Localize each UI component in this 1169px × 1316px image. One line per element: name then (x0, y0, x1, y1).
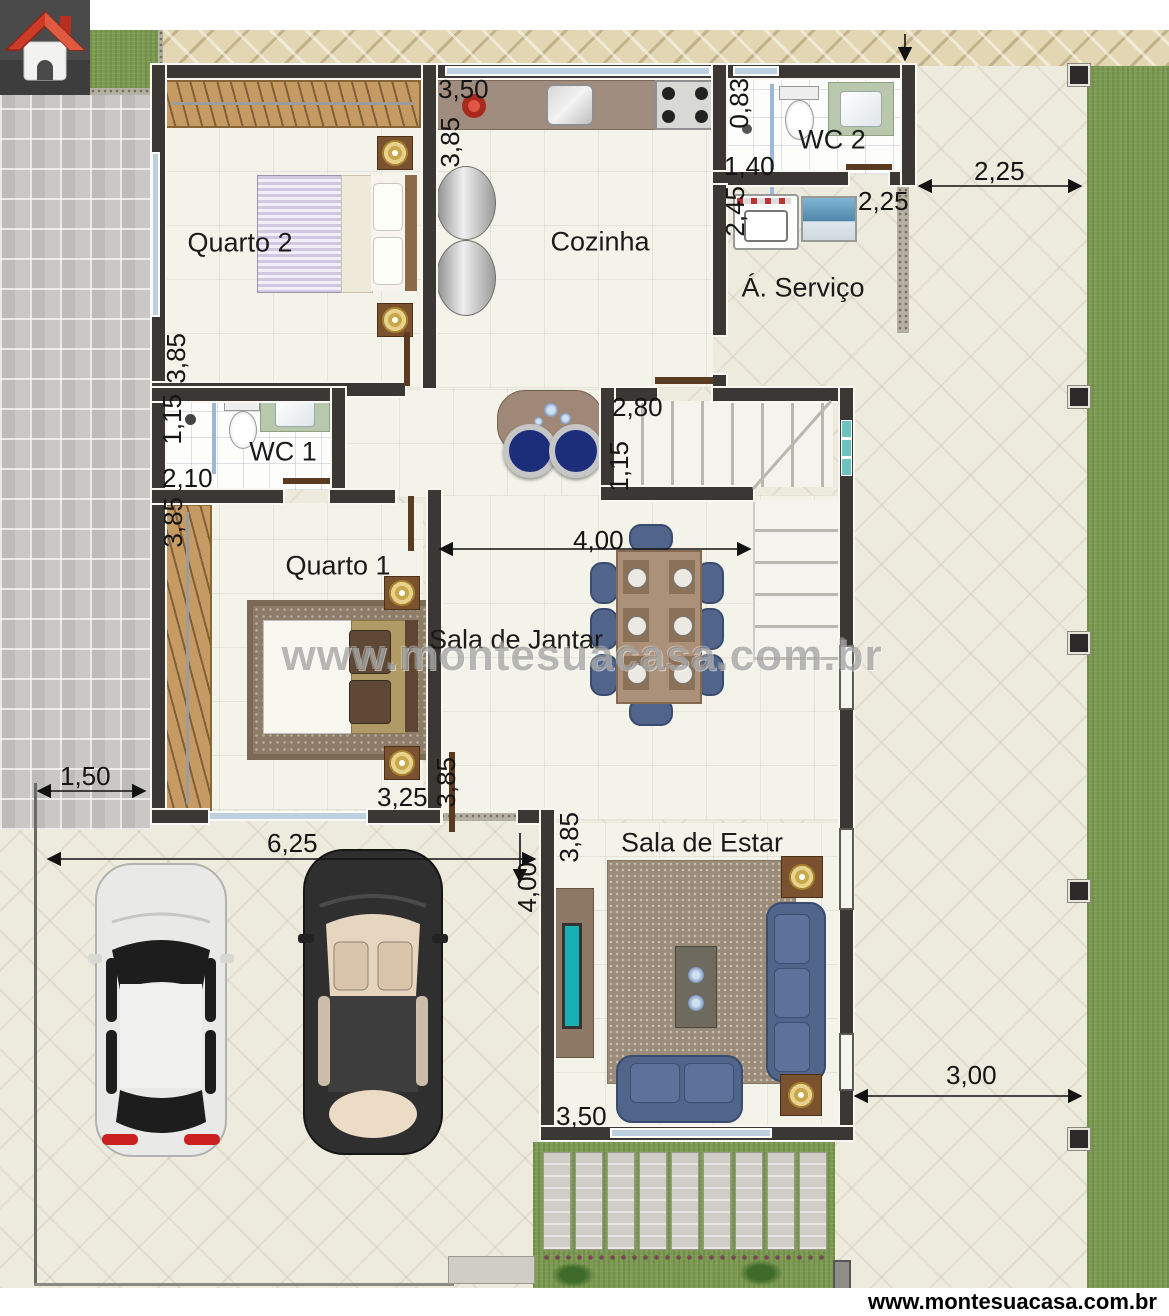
refrigerator-icon (436, 166, 496, 240)
logo-house-icon (0, 0, 90, 95)
dim-garage-depth: 4,00 (514, 862, 540, 913)
dim-wc2-width: 1,40 (724, 153, 775, 179)
room-label-quarto2: Quarto 2 (187, 228, 292, 259)
stove-icon (655, 80, 715, 130)
dim-jantar-width: 4,00 (573, 527, 624, 553)
window-quarto2 (151, 152, 160, 317)
dim-quarto1-width: 3,25 (377, 784, 428, 810)
footer-banner: www.montesuacasa.com.br (0, 1288, 1169, 1316)
column-marker (1068, 1128, 1090, 1150)
sofa-main (766, 902, 826, 1082)
property-boundary-left (34, 783, 37, 1286)
kitchen-sink-icon (546, 84, 594, 126)
dim-kitchen-width: 3,50 (438, 76, 489, 102)
nightstand-lamp (377, 136, 413, 170)
dim-stairs-height: 1,15 (606, 441, 632, 492)
column-marker (1068, 632, 1090, 654)
side-table-lamp (780, 1074, 822, 1116)
dim-quarto1-right-height: 3,85 (433, 757, 459, 808)
mosaic-border-top (163, 30, 1169, 66)
wall (840, 388, 853, 1140)
door-quarto1 (408, 496, 414, 551)
dim-wc1-width: 2,10 (162, 465, 213, 491)
wall (902, 65, 915, 185)
dim-servico-height: 2,45 (722, 186, 748, 237)
wardrobe-quarto2 (165, 80, 421, 128)
dim-sidewalk: 1,50 (60, 763, 111, 789)
car-black (298, 846, 448, 1158)
wall (152, 810, 208, 823)
window-estar-east (839, 828, 854, 910)
room-label-cozinha: Cozinha (550, 227, 649, 258)
floor-plan: Quarto 2 Cozinha WC 2 Á. Serviço WC 1 Qu… (0, 0, 1169, 1316)
column-marker (1068, 64, 1090, 86)
paver-sidewalk-left (0, 95, 151, 830)
tv-icon (562, 923, 582, 1029)
room-label-wc1: WC 1 (249, 437, 317, 468)
column-marker (1068, 386, 1090, 408)
plant-icon (739, 1260, 783, 1286)
glass-block-window (841, 420, 852, 476)
bar-stool-icon (549, 424, 603, 478)
dim-estar-width: 3,50 (556, 1103, 607, 1129)
wall (423, 65, 436, 388)
watermark: www.montesuacasa.com.br (282, 631, 883, 681)
sofa-loveseat (616, 1055, 743, 1123)
wall (541, 810, 554, 1140)
dim-wc1-height: 1,15 (159, 394, 185, 445)
wall (332, 388, 345, 503)
dim-stairs-width: 2,80 (612, 394, 663, 420)
door-quarto2 (404, 332, 410, 386)
dining-chair (590, 562, 618, 604)
trash-bin-icon (436, 240, 496, 316)
room-label-estar: Sala de Estar (621, 828, 783, 859)
door-servico (655, 377, 713, 384)
window-estar-south (610, 1128, 772, 1138)
room-label-servico: Á. Serviço (741, 273, 864, 304)
wardrobe-quarto1 (164, 504, 212, 812)
window-quarto1 (208, 811, 368, 821)
coffee-table (675, 946, 717, 1028)
grass-strip-right (1087, 65, 1169, 1288)
room-label-quarto1: Quarto 1 (285, 551, 390, 582)
dim-quarto1-left-height: 3,85 (160, 497, 186, 548)
window-wc2 (733, 66, 779, 76)
door-wc1 (283, 478, 330, 484)
footer-url: www.montesuacasa.com.br (868, 1289, 1157, 1315)
plant-icon (551, 1262, 595, 1288)
wall (713, 388, 853, 401)
dim-right-top: 2,25 (974, 158, 1025, 184)
column-marker (1068, 880, 1090, 902)
wall (330, 490, 395, 503)
side-table-lamp (781, 856, 823, 898)
dim-estar-left-height: 3,85 (556, 812, 582, 863)
garden-walkway (533, 1142, 835, 1288)
property-boundary-bottom (34, 1283, 454, 1286)
dim-kitchen-depth: 3,85 (437, 117, 463, 168)
door-wc2 (846, 164, 892, 170)
paver-step (448, 1256, 535, 1284)
dim-quarto2-height: 3,85 (163, 333, 189, 384)
dim-wc2-height: 0,83 (726, 78, 752, 129)
toilet-wc2 (779, 86, 819, 100)
window-estar-east2 (839, 1033, 854, 1091)
dim-wc2-door: 2,25 (858, 188, 909, 214)
nightstand-lamp (384, 746, 420, 780)
dining-chair (629, 524, 673, 552)
laundry-tub-icon (801, 196, 857, 242)
dim-garage-width: 6,25 (267, 830, 318, 856)
dim-right-bottom: 3,00 (946, 1062, 997, 1088)
room-label-wc2: WC 2 (798, 125, 866, 156)
car-white (88, 858, 234, 1162)
